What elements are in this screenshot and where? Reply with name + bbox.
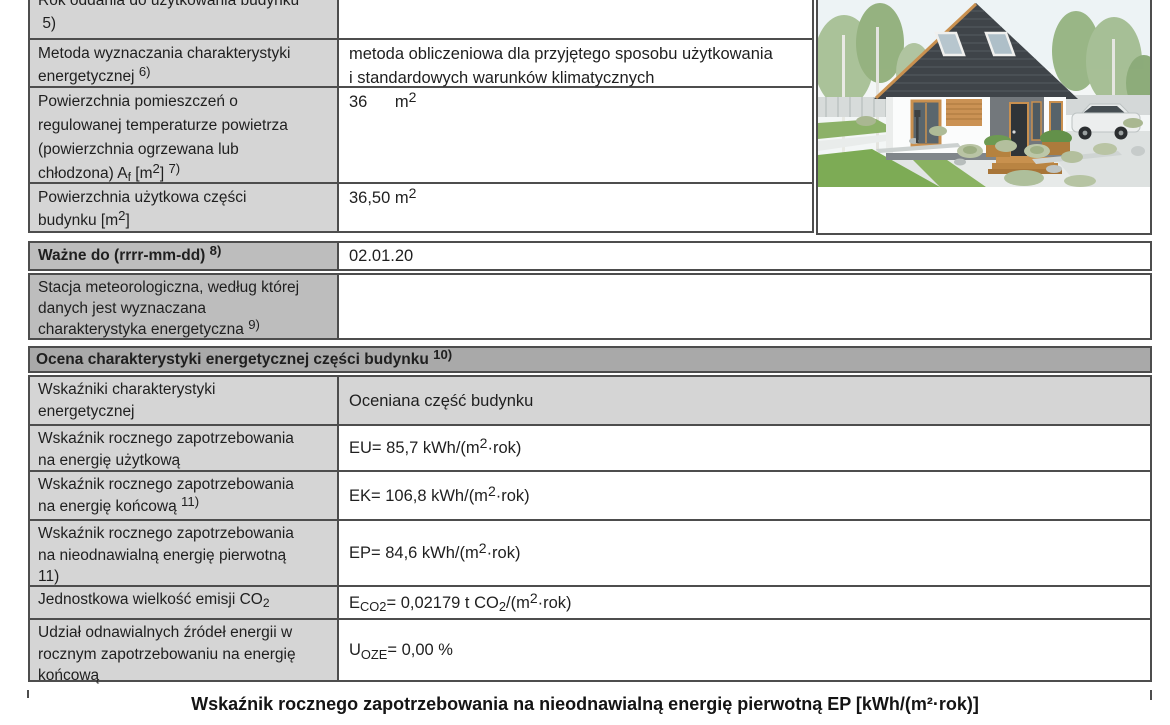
row-label: Wskaźniki charakterystyki energetycznej (30, 377, 339, 424)
row-value: EK= 106,8 kWh/(m2·rok) (339, 472, 1150, 519)
table-row-oze: Udział odnawialnych źródeł energii w roc… (30, 618, 1150, 680)
section-header-ocena: Ocena charakterystyki energetycznej częś… (28, 346, 1152, 373)
assessed-part-label: Oceniana część budynku (349, 389, 533, 413)
row-label: Metoda wyznaczania charakterystyki energ… (30, 40, 339, 86)
table-row-stacja-meteorologiczna: Stacja meteorologiczna, według której da… (28, 273, 1152, 340)
row-value: UOZE= 0,00 % (339, 620, 1150, 680)
eu-value: EU= 85,7 kWh/(m2·rok) (349, 436, 521, 460)
table-row-rok-oddania: Rok oddania do użytkowania budynku 5) (30, 0, 812, 38)
row-value: Oceniana część budynku (339, 377, 1150, 424)
row-label: Rok oddania do użytkowania budynku 5) (30, 0, 339, 38)
row-label: Wskaźnik rocznego zapotrzebowania na ene… (30, 472, 339, 519)
valid-until-value: 02.01.20 (339, 243, 1150, 269)
row-label: Jednostkowa wielkość emisji CO2 (30, 587, 339, 618)
table-row-wskazniki: Wskaźniki charakterystyki energetycznej … (30, 377, 1150, 424)
table-row-powierzchnia-regulowana: Powierzchnia pomieszczeń o regulowanej t… (30, 86, 812, 182)
table-row-ek: Wskaźnik rocznego zapotrzebowania na ene… (30, 470, 1150, 519)
row-value: 36,50 m2 (339, 184, 812, 231)
row-value (339, 275, 1150, 338)
table-row-metoda: Metoda wyznaczania charakterystyki energ… (30, 38, 812, 86)
building-photo-cell (816, 0, 1152, 235)
row-label: Stacja meteorologiczna, według której da… (30, 275, 339, 338)
assessment-table: Wskaźniki charakterystyki energetycznej … (28, 375, 1152, 682)
ek-value: EK= 106,8 kWh/(m2·rok) (349, 484, 530, 508)
row-label: Wskaźnik rocznego zapotrzebowania na nie… (30, 521, 339, 585)
row-value: EP= 84,6 kWh/(m2·rok) (339, 521, 1150, 585)
row-value: ECO2= 0,02179 t CO2/(m2·rok) (339, 587, 1150, 618)
table-row-ep: Wskaźnik rocznego zapotrzebowania na nie… (30, 519, 1150, 585)
building-info-table: Rok oddania do użytkowania budynku 5) Me… (28, 0, 814, 233)
row-value: 36 m2 (339, 88, 812, 182)
co2-value: ECO2= 0,02179 t CO2/(m2·rok) (349, 591, 572, 615)
table-row-powierzchnia-uzytkowa: Powierzchnia użytkowa części budynku [m2… (30, 182, 812, 231)
building-photo (818, 0, 1150, 187)
row-value (339, 0, 812, 38)
ep-scale-title: Wskaźnik rocznego zapotrzebowania na nie… (0, 694, 1170, 715)
row-label: Wskaźnik rocznego zapotrzebowania na ene… (30, 426, 339, 470)
row-label: Ważne do (rrrr-mm-dd) 8) (30, 243, 339, 269)
valid-until-date: 02.01.20 (349, 244, 413, 268)
ep-value: EP= 84,6 kWh/(m2·rok) (349, 541, 520, 565)
row-label: Powierzchnia pomieszczeń o regulowanej t… (30, 88, 339, 182)
row-label: Powierzchnia użytkowa części budynku [m2… (30, 184, 339, 231)
oze-value: UOZE= 0,00 % (349, 638, 453, 662)
row-value: EU= 85,7 kWh/(m2·rok) (339, 426, 1150, 470)
table-row-co2: Jednostkowa wielkość emisji CO2 ECO2= 0,… (30, 585, 1150, 618)
table-row-eu: Wskaźnik rocznego zapotrzebowania na ene… (30, 424, 1150, 470)
table-row-wazne-do: Ważne do (rrrr-mm-dd) 8) 02.01.20 (28, 241, 1152, 271)
row-label: Udział odnawialnych źródeł energii w roc… (30, 620, 339, 680)
energy-certificate-page: Rok oddania do użytkowania budynku 5) Me… (0, 0, 1170, 725)
row-value: metoda obliczeniowa dla przyjętego sposo… (339, 40, 812, 86)
